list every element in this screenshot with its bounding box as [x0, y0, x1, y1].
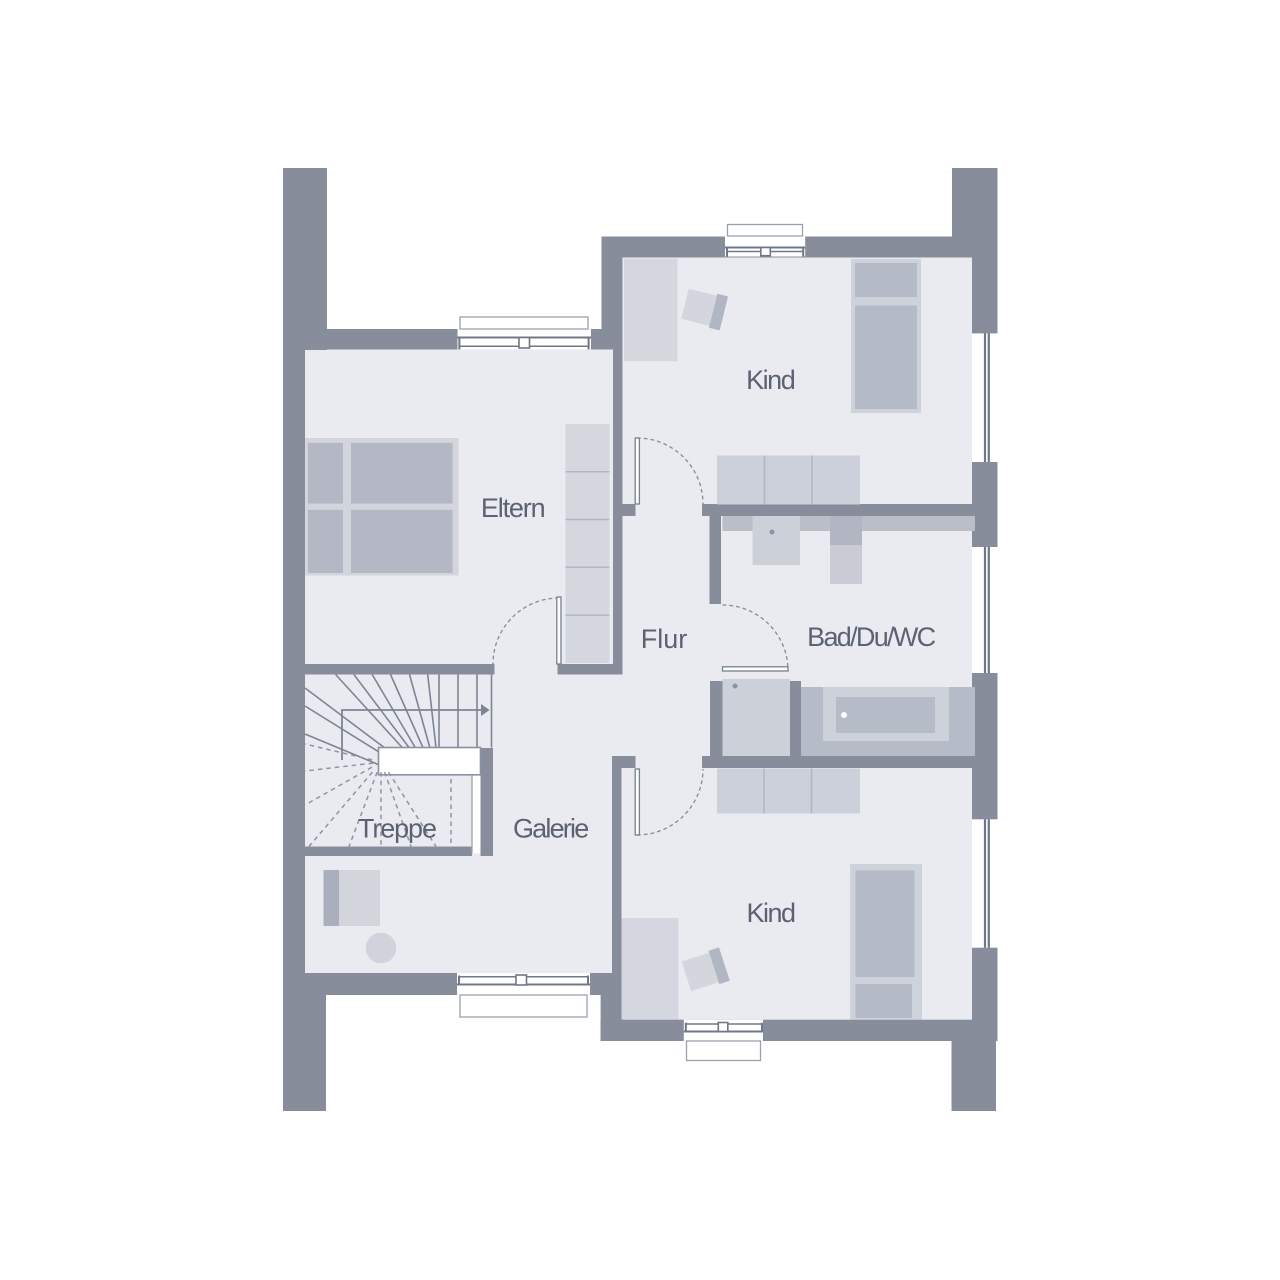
svg-text:Flur: Flur — [641, 624, 688, 654]
svg-text:Treppe: Treppe — [358, 814, 436, 844]
svg-text:Kind: Kind — [746, 898, 795, 928]
svg-text:Kind: Kind — [746, 365, 795, 395]
svg-text:Galerie: Galerie — [513, 814, 588, 844]
svg-text:Eltern: Eltern — [481, 493, 545, 523]
svg-text:Bad/Du/WC: Bad/Du/WC — [807, 622, 935, 652]
